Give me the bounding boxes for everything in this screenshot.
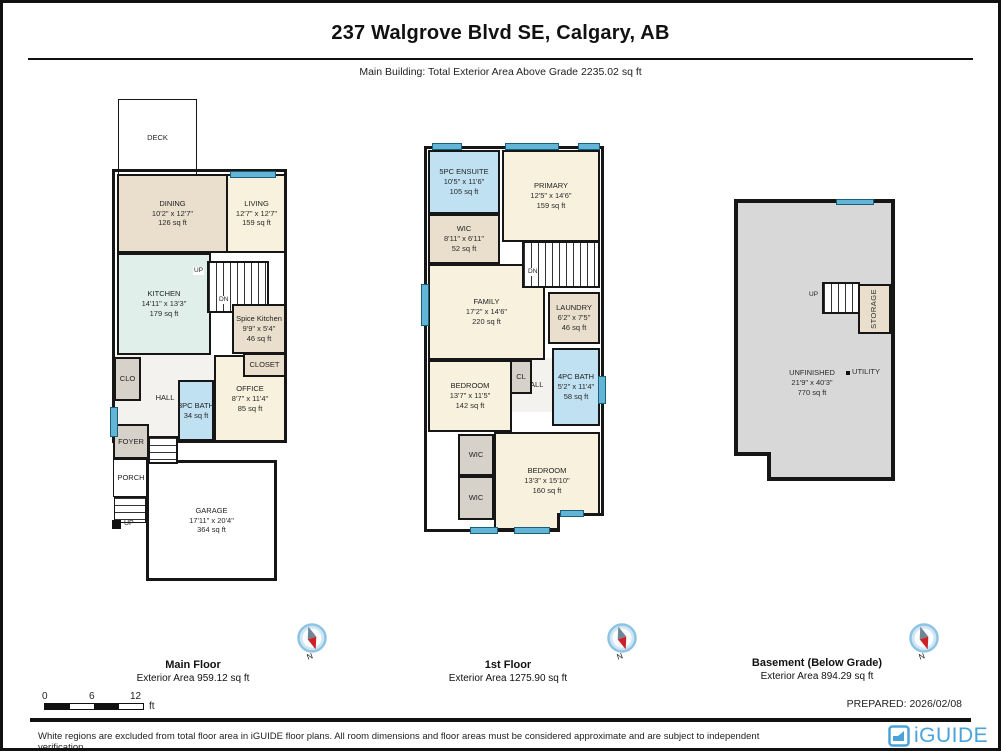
window <box>421 284 429 326</box>
floor-area: Exterior Area 959.12 sq ft <box>98 673 288 684</box>
wall <box>767 452 771 481</box>
basement-stairs <box>822 282 860 314</box>
window <box>560 510 584 517</box>
room-label: STORAGE <box>870 289 880 329</box>
window <box>578 143 600 150</box>
basement-caption: Basement (Below Grade) Exterior Area 894… <box>722 657 912 682</box>
scale-bar-segments <box>44 703 144 710</box>
window <box>836 199 874 205</box>
floor-name: Main Floor <box>98 659 288 671</box>
first-floor-caption: 1st Floor Exterior Area 1275.90 sq ft <box>413 659 603 684</box>
window <box>432 143 462 150</box>
stairs-down-label: DN <box>527 268 538 276</box>
window <box>470 527 498 534</box>
window <box>598 376 606 404</box>
scale-tick: 0 <box>42 691 48 702</box>
window <box>110 407 118 437</box>
scale-tick: 12 <box>130 691 141 702</box>
room-area: 364 sq ft <box>197 525 226 535</box>
utility-label: UTILITY <box>842 367 890 376</box>
iguide-logo-text: iGUIDE <box>914 724 988 748</box>
first-floor-outline <box>424 146 604 532</box>
room-dims: 17'11" x 20'4" <box>189 516 234 526</box>
iguide-logo: iGUIDE <box>888 724 988 748</box>
window <box>230 171 276 178</box>
prepared-date: PREPARED: 2026/02/08 <box>760 698 962 710</box>
unfinished-area <box>734 199 895 481</box>
window <box>505 143 559 150</box>
stairs-down-label: DN <box>218 296 229 304</box>
title-divider <box>28 58 973 60</box>
deck-room: DECK <box>118 99 197 176</box>
room-label: GARAGE <box>195 506 227 516</box>
foyer-room: FOYER <box>113 424 149 459</box>
compass-icon: N <box>294 622 330 671</box>
room-dims: 21'9" x 40'3" <box>762 378 862 388</box>
basement-plan: UP STORAGE UNFINISHED 21'9" x 40'3" 770 … <box>734 199 895 481</box>
porch-post-marker <box>112 520 121 529</box>
stairs-up-label: UP <box>193 267 204 275</box>
wall <box>734 452 771 456</box>
foyer-stairs <box>148 436 178 464</box>
page-subtitle: Main Building: Total Exterior Area Above… <box>0 66 1001 78</box>
room-area: 770 sq ft <box>762 388 862 398</box>
porch-room: PORCH <box>113 459 149 497</box>
wall <box>891 199 895 481</box>
iguide-logo-icon <box>888 725 910 747</box>
main-floor-caption: Main Floor Exterior Area 959.12 sq ft <box>98 659 288 684</box>
scale-unit: ft <box>149 701 155 712</box>
floor-area: Exterior Area 894.29 sq ft <box>722 671 912 682</box>
room-label: FOYER <box>118 437 144 447</box>
page-title: 237 Walgrove Blvd SE, Calgary, AB <box>0 22 1001 45</box>
footer-disclaimer: White regions are excluded from total fl… <box>38 731 778 753</box>
scale-tick: 6 <box>89 691 95 702</box>
wall <box>767 477 895 481</box>
floor-name: 1st Floor <box>413 659 603 671</box>
compass-icon: N <box>906 622 942 671</box>
scale-bar: 0 6 12 ft <box>44 691 174 713</box>
wall <box>734 199 738 456</box>
scale-segment <box>94 704 119 709</box>
garage-room: GARAGE 17'11" x 20'4" 364 sq ft <box>146 460 277 581</box>
main-floor-outline <box>112 169 287 443</box>
compass-icon: N <box>604 622 640 671</box>
room-label: PORCH <box>117 473 144 483</box>
footer-divider <box>30 718 971 722</box>
floor-area: Exterior Area 1275.90 sq ft <box>413 673 603 684</box>
room-label: DECK <box>147 133 168 143</box>
window <box>514 527 550 534</box>
stairs-up-label: UP <box>808 291 819 299</box>
porch-up-label: UP <box>124 520 134 527</box>
storage-room: STORAGE <box>858 284 891 334</box>
scale-segment <box>45 704 70 709</box>
floor-name: Basement (Below Grade) <box>722 657 912 669</box>
